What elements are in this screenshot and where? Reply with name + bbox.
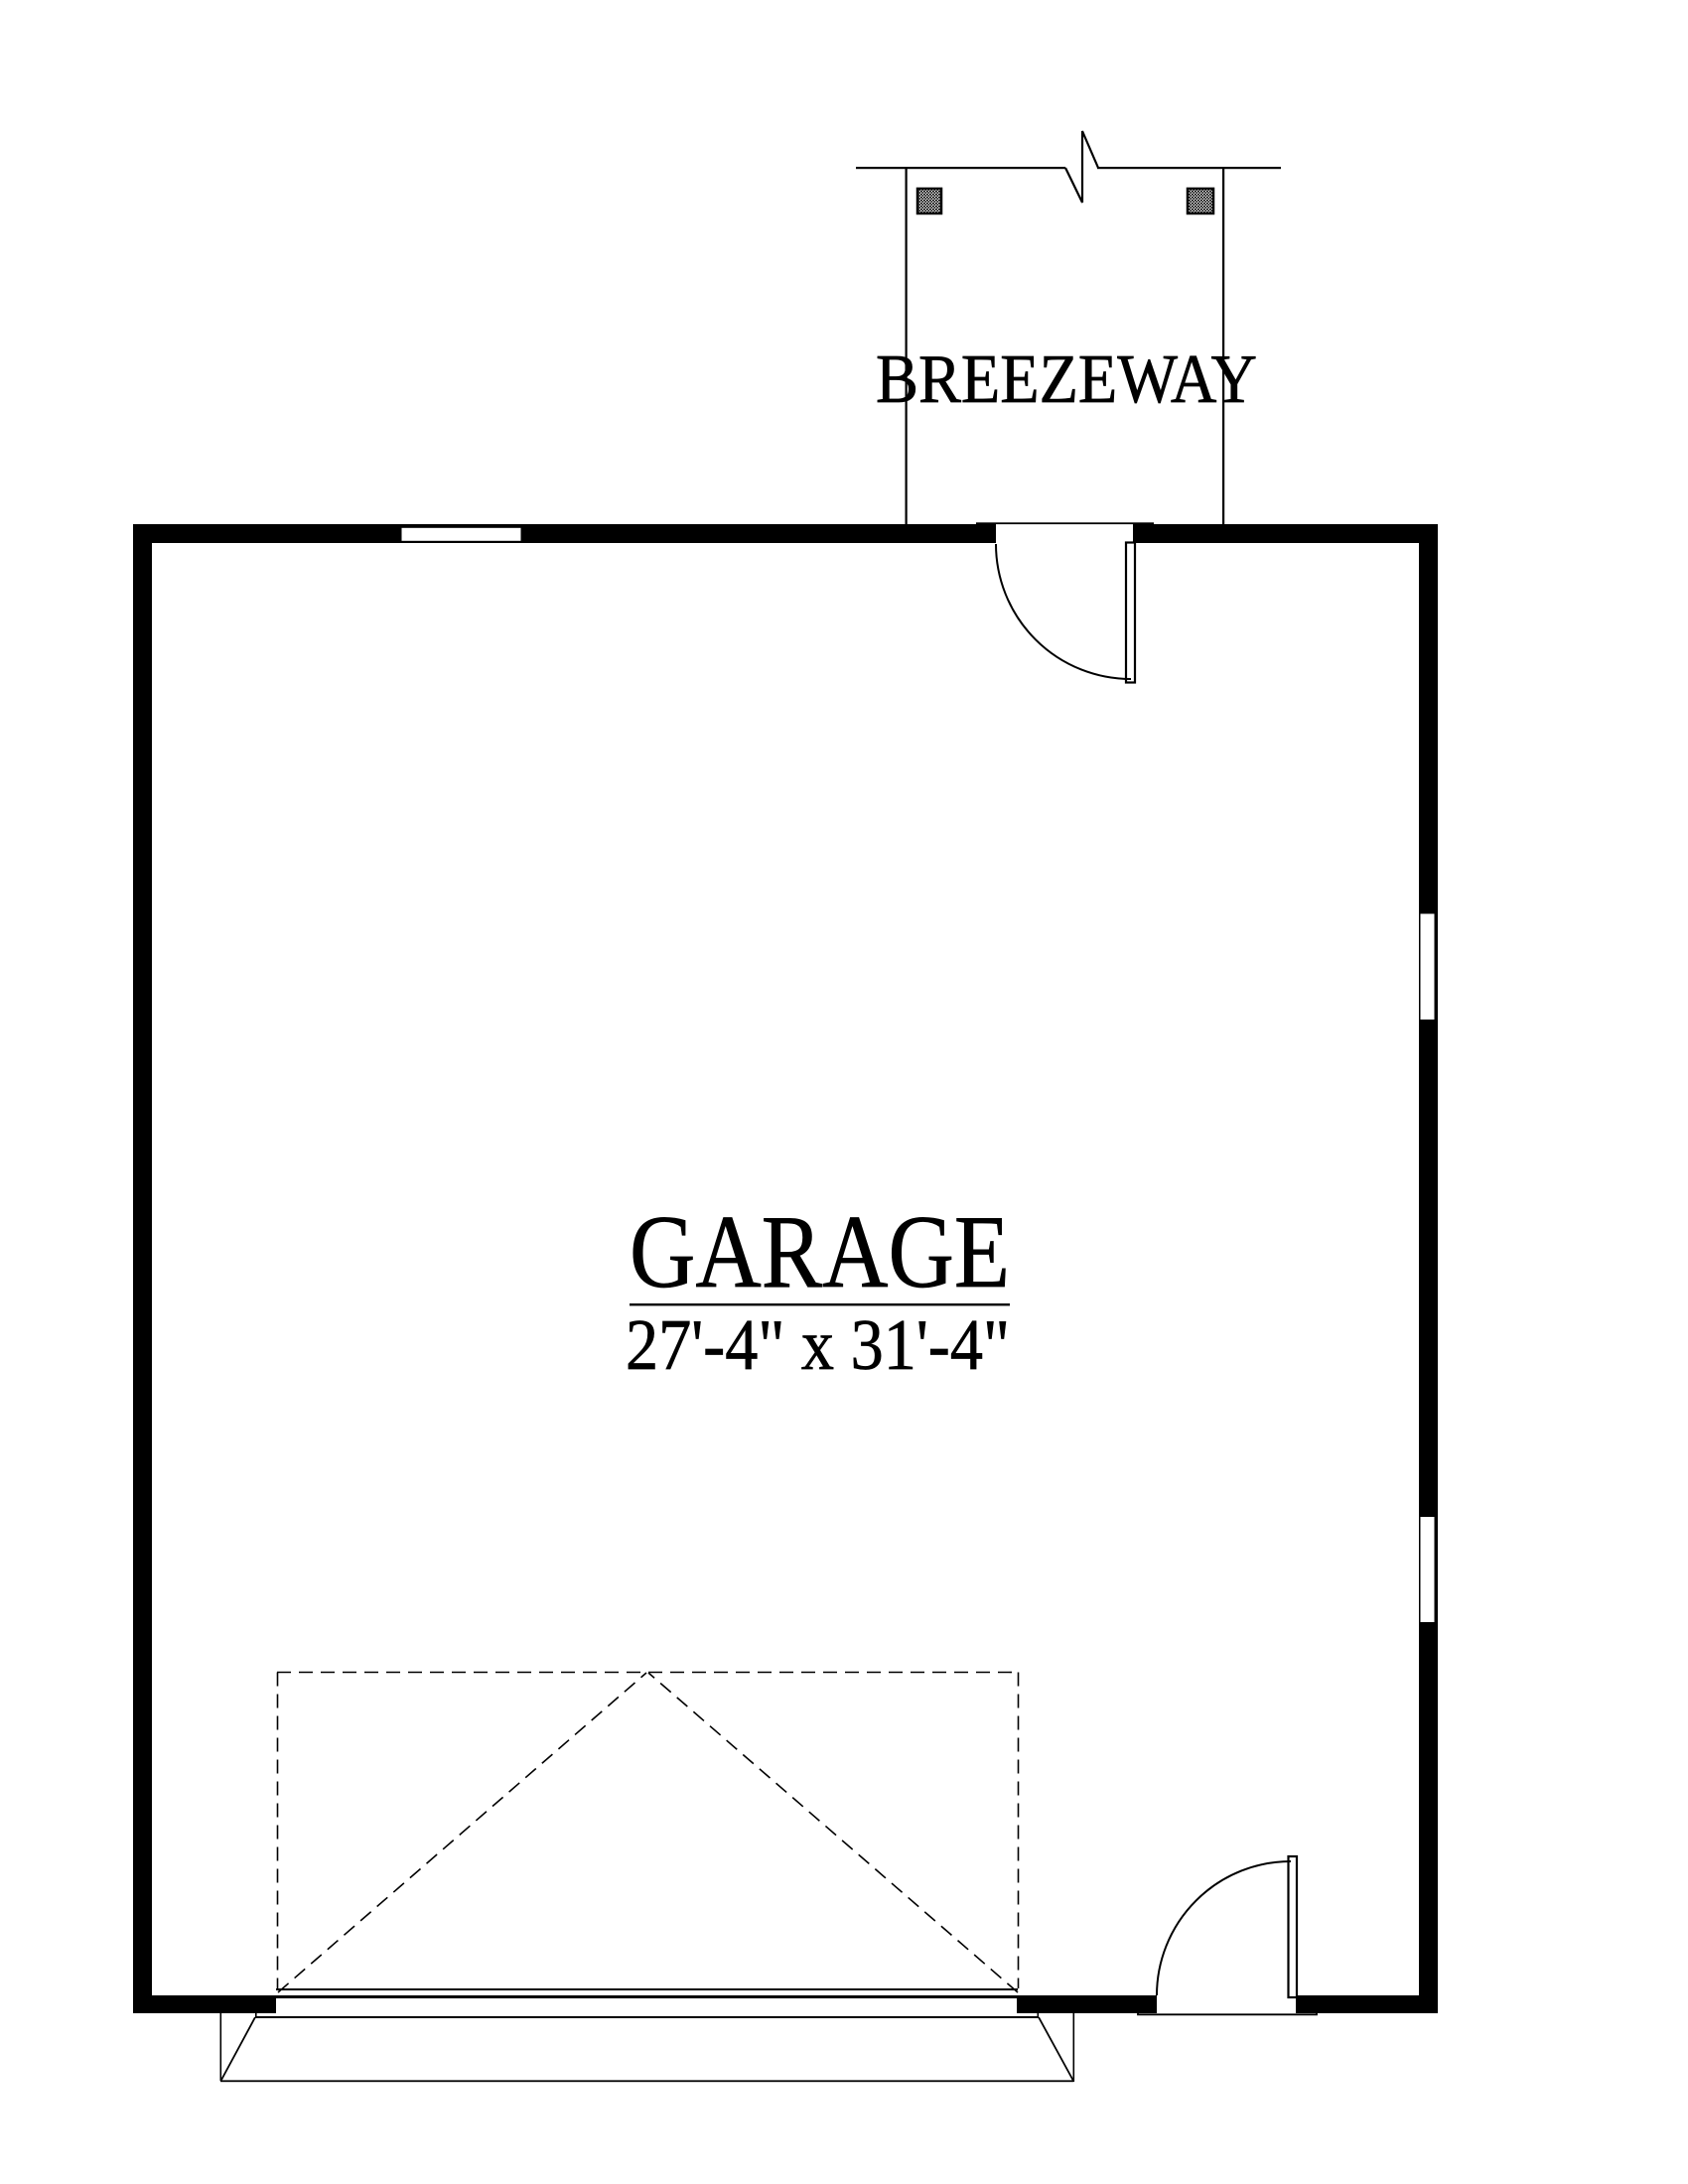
svg-text:GARAGE: GARAGE: [630, 1193, 1010, 1309]
svg-text:BREEZEWAY: BREEZEWAY: [876, 341, 1257, 418]
svg-text:27'-4" x 31'-4": 27'-4" x 31'-4": [626, 1304, 1010, 1385]
